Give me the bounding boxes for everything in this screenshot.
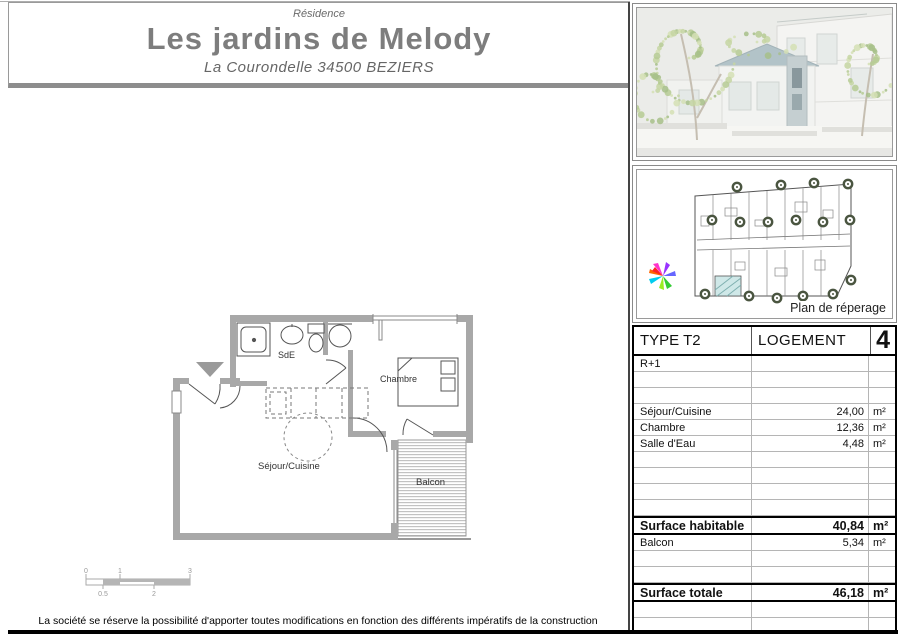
building-render-image: [637, 8, 892, 156]
svg-text:2: 2: [152, 591, 156, 598]
svg-text:0.5: 0.5: [98, 591, 108, 598]
svg-text:0: 0: [84, 568, 88, 575]
column-divider: [628, 2, 630, 632]
table-row: [634, 602, 895, 618]
svg-text:3: 3: [188, 568, 192, 575]
table-cell: Surface totale: [634, 585, 752, 600]
plan-sheet: Résidence Les jardins de Melody La Couro…: [0, 0, 900, 637]
table-cell: Séjour/Cuisine: [634, 404, 752, 419]
table-row: [634, 372, 895, 388]
table-cell: 24,00: [752, 404, 869, 419]
site-plan-drawing: [637, 170, 892, 318]
table-cell: m²: [869, 519, 895, 533]
table-cell: 46,18: [752, 585, 869, 600]
table-row: Surface habitable40,84m²: [634, 516, 895, 535]
site-plan-caption: Plan de réperage: [786, 301, 886, 315]
table-cell: 40,84: [752, 518, 869, 533]
footer-disclaimer: La société se réserve la possibilité d'a…: [8, 615, 628, 627]
label-sejour-cuisine: Séjour/Cuisine: [258, 461, 320, 472]
table-cell: [752, 484, 869, 499]
info-table-body: R+1Séjour/Cuisine24,00m²Chambre12,36m²Sa…: [634, 356, 895, 634]
logement-number: 4: [871, 326, 895, 355]
residence-name: Les jardins de Melody: [9, 21, 629, 57]
type-cell: TYPE T2: [634, 327, 752, 354]
table-cell: [752, 452, 869, 467]
table-cell: [752, 551, 869, 566]
table-cell: Salle d'Eau: [634, 436, 752, 451]
info-table: TYPE T2 LOGEMENT 4 R+1Séjour/Cuisine24,0…: [632, 325, 897, 632]
label-sde: SdE: [278, 350, 295, 360]
table-cell: [634, 468, 752, 483]
table-row: [634, 500, 895, 516]
table-cell: m²: [869, 422, 895, 434]
table-cell: m²: [869, 406, 895, 418]
table-row: [634, 452, 895, 468]
table-cell: [634, 500, 752, 515]
table-cell: m²: [869, 438, 895, 450]
table-cell: [634, 484, 752, 499]
entrance-arrow-icon: [196, 362, 224, 377]
table-cell: [752, 356, 869, 371]
table-cell: [634, 372, 752, 387]
residence-address: La Courondelle 34500 BEZIERS: [9, 59, 629, 76]
table-cell: m²: [869, 586, 895, 600]
table-row: Séjour/Cuisine24,00m²: [634, 404, 895, 420]
table-row: Chambre12,36m²: [634, 420, 895, 436]
table-cell: [752, 602, 869, 617]
window: [373, 314, 457, 324]
table-cell: [634, 602, 752, 617]
table-cell: 12,36: [752, 420, 869, 435]
building-render-panel: [632, 3, 897, 161]
table-cell: [752, 500, 869, 515]
table-row: [634, 484, 895, 500]
table-row: [634, 567, 895, 583]
residence-kicker: Résidence: [9, 8, 629, 20]
table-cell: Surface habitable: [634, 518, 752, 533]
label-balcon: Balcon: [416, 477, 445, 488]
table-row: Surface totale46,18m²: [634, 583, 895, 602]
table-row: [634, 468, 895, 484]
table-row: Balcon5,34m²: [634, 535, 895, 551]
table-cell: [634, 388, 752, 403]
table-cell: Chambre: [634, 420, 752, 435]
balcony: [391, 440, 471, 539]
table-row: Salle d'Eau4,48m²: [634, 436, 895, 452]
label-chambre: Chambre: [380, 374, 417, 384]
table-row: [634, 388, 895, 404]
title-block: Résidence Les jardins de Melody La Couro…: [8, 2, 630, 88]
table-cell: [634, 551, 752, 566]
table-cell: Balcon: [634, 535, 752, 550]
table-cell: [752, 388, 869, 403]
page-bottom-border: [8, 630, 898, 634]
table-cell: R+1: [634, 356, 752, 371]
highlighted-unit: [715, 276, 741, 296]
wardrobe: [379, 320, 382, 340]
compass-rose-icon: [649, 262, 676, 290]
table-cell: [752, 468, 869, 483]
table-cell: 4,48: [752, 436, 869, 451]
table-row: [634, 551, 895, 567]
logement-cell: LOGEMENT: [752, 327, 871, 354]
floor-plan-drawing: [158, 306, 488, 556]
table-cell: [752, 567, 869, 582]
site-plan-panel: Plan de réperage: [632, 165, 897, 323]
scale-bar: 0 1 3 0.5 2: [68, 566, 208, 601]
table-cell: m²: [869, 537, 895, 549]
table-cell: [634, 567, 752, 582]
table-cell: [634, 452, 752, 467]
table-cell: 5,34: [752, 535, 869, 550]
table-row: R+1: [634, 356, 895, 372]
info-table-header: TYPE T2 LOGEMENT 4: [634, 327, 895, 356]
svg-text:1: 1: [118, 568, 122, 575]
floor-plan-area: SdE Chambre Séjour/Cuisine Balcon 0 1 3 …: [8, 88, 628, 630]
table-cell: [752, 372, 869, 387]
